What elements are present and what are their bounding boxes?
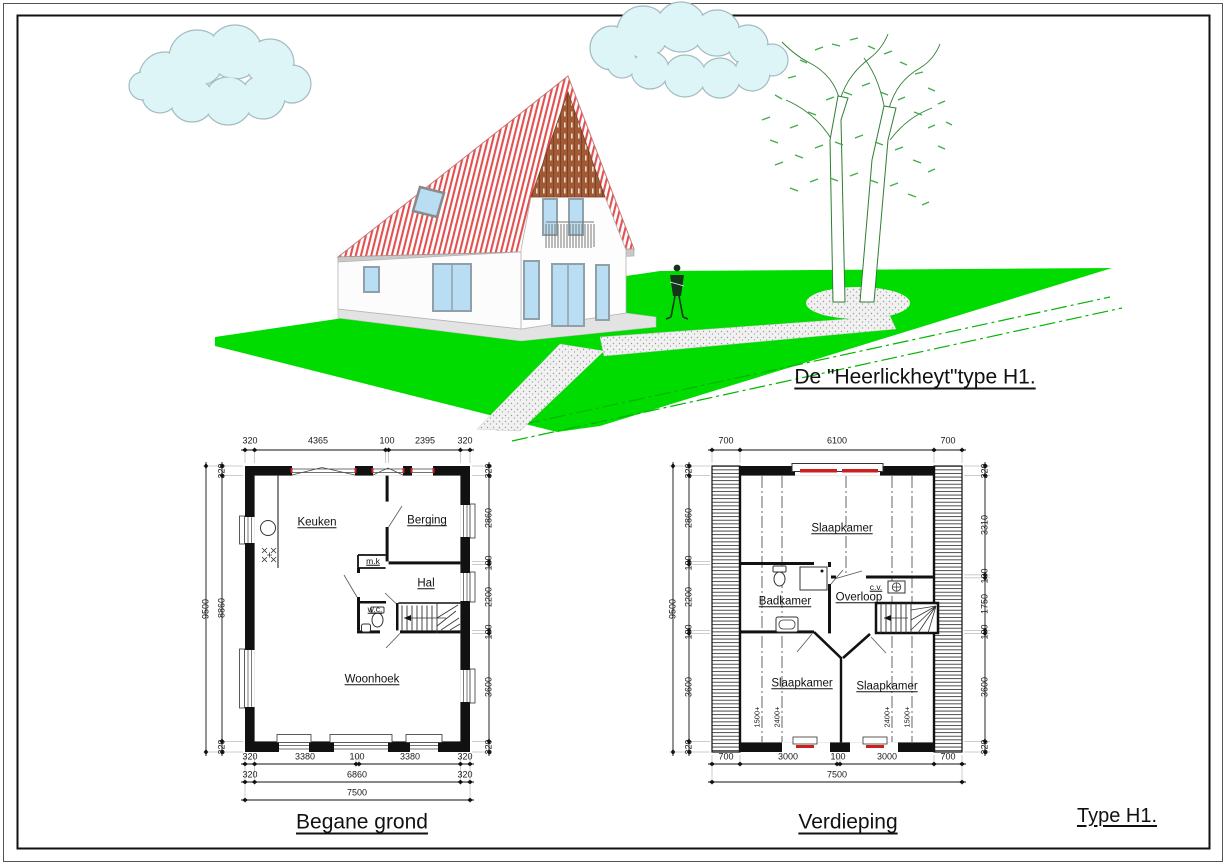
dim-label: 320 — [685, 739, 694, 754]
room-label-storage: Berging — [407, 515, 447, 527]
roof-height-label: 2400+ — [773, 706, 781, 727]
dim-label: 3380 — [295, 753, 315, 762]
dim-label: 3600 — [981, 677, 990, 697]
dim-label: 320 — [242, 437, 257, 446]
dim-label: 3310 — [981, 515, 990, 535]
dim-label: 2860 — [685, 508, 694, 528]
dim-label: 100 — [685, 555, 694, 570]
dim-label: 9500 — [202, 599, 211, 619]
dim-label: 2860 — [485, 508, 494, 528]
dim-label: 320 — [242, 771, 257, 780]
dim-label: 320 — [218, 463, 227, 478]
dim-label: 700 — [940, 437, 955, 446]
dim-label: 3600 — [485, 677, 494, 697]
dim-label: 8860 — [218, 598, 227, 618]
dim-label: 100 — [830, 753, 845, 762]
dim-label: 6860 — [347, 771, 367, 780]
room-label-bedroom-top: Slaapkamer — [811, 523, 872, 535]
roof-height-label: 1500+ — [753, 706, 761, 727]
dim-label: 100 — [349, 753, 364, 762]
dim-label: 320 — [457, 437, 472, 446]
roof-height-label: 1500+ — [903, 706, 911, 727]
dim-label: 100 — [379, 437, 394, 446]
dim-label: 320 — [485, 463, 494, 478]
dim-label: 6100 — [827, 437, 847, 446]
room-label-bedroom-right: Slaapkamer — [856, 681, 917, 693]
room-label-meter-cupboard: m.k — [366, 557, 380, 566]
room-label-kitchen: Keuken — [297, 517, 336, 529]
dim-label: 100 — [981, 624, 990, 639]
dim-label: 100 — [685, 624, 694, 639]
dim-label: 9500 — [669, 599, 678, 619]
roof-height-label: 2400+ — [883, 706, 891, 727]
room-label-hall: Hal — [417, 578, 434, 590]
dim-label: 2200 — [485, 587, 494, 607]
drawing-sheet: De "Heerlickheyt"type H1. Begane grond V… — [0, 0, 1226, 865]
dim-label: 3380 — [400, 753, 420, 762]
type-label: Type H1. — [1077, 806, 1157, 826]
room-label-heating: c.v. — [870, 583, 883, 592]
dim-label: 320 — [457, 771, 472, 780]
dim-label: 320 — [218, 739, 227, 754]
upper-floor-caption: Verdieping — [798, 812, 897, 833]
dim-label: 320 — [457, 753, 472, 762]
dim-label: 700 — [940, 753, 955, 762]
dim-label: 7500 — [827, 771, 847, 780]
dim-label: 2200 — [685, 587, 694, 607]
dim-label: 100 — [981, 568, 990, 583]
dim-label: 320 — [685, 463, 694, 478]
dim-label: 100 — [485, 624, 494, 639]
room-label-landing: Overloop — [836, 592, 883, 604]
room-label-bedroom-left: Slaapkamer — [771, 678, 832, 690]
dim-label: 2395 — [415, 437, 435, 446]
ground-floor-caption: Begane grond — [296, 812, 428, 833]
dim-label: 100 — [485, 555, 494, 570]
dim-label: 320 — [981, 463, 990, 478]
dim-label: 3600 — [685, 677, 694, 697]
dim-label: 320 — [981, 739, 990, 754]
room-label-bathroom: Badkamer — [759, 596, 811, 608]
room-label-toilet: w.c. — [368, 605, 383, 614]
dim-label: 320 — [485, 739, 494, 754]
dim-label: 3000 — [778, 753, 798, 762]
dim-label: 4365 — [308, 437, 328, 446]
dim-label: 7500 — [347, 789, 367, 798]
dim-label: 320 — [242, 753, 257, 762]
drawing-title: De "Heerlickheyt"type H1. — [794, 367, 1035, 388]
dim-label: 700 — [718, 753, 733, 762]
room-label-living-area: Woonhoek — [345, 674, 400, 686]
dim-label: 700 — [718, 437, 733, 446]
dim-label: 1750 — [981, 594, 990, 614]
dim-label: 3000 — [877, 753, 897, 762]
text-layer: De "Heerlickheyt"type H1. Begane grond V… — [0, 0, 1226, 865]
